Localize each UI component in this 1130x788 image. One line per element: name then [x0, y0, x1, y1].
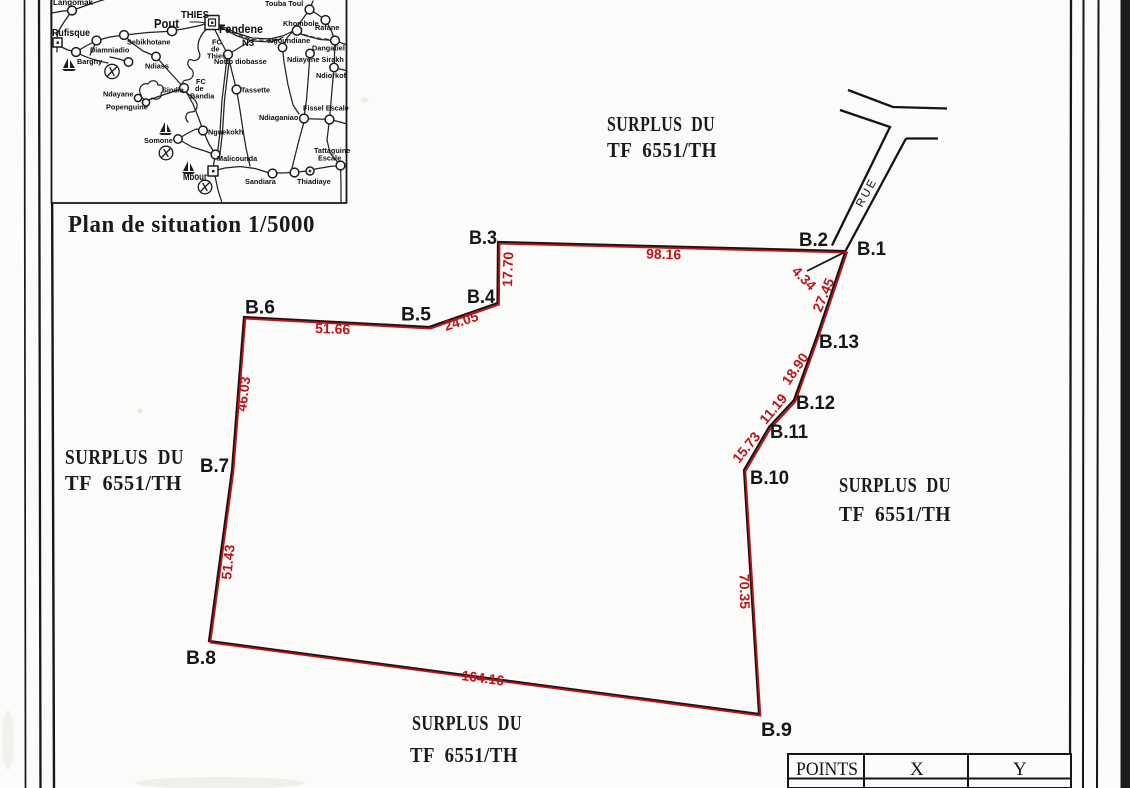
svg-text:B.3: B.3	[469, 228, 497, 249]
svg-text:Popenguine: Popenguine	[106, 103, 148, 112]
svg-text:B.9: B.9	[761, 720, 792, 741]
svg-text:Ndiass: Ndiass	[145, 62, 169, 71]
svg-text:Dangatiel: Dangatiel	[312, 44, 345, 53]
svg-text:Rafane: Rafane	[315, 23, 339, 32]
svg-text:B.12: B.12	[796, 393, 835, 414]
svg-text:Ndiorkof: Ndiorkof	[316, 71, 347, 80]
svg-text:17.70: 17.70	[499, 251, 516, 287]
svg-text:Malicounda: Malicounda	[217, 154, 258, 163]
svg-text:Diamniadio: Diamniadio	[90, 46, 130, 55]
svg-text:Sandiara: Sandiara	[245, 177, 277, 186]
svg-text:POINTS: POINTS	[796, 759, 858, 780]
svg-text:N3: N3	[242, 38, 254, 49]
svg-text:B.10: B.10	[750, 468, 789, 489]
svg-text:Langomak: Langomak	[53, 0, 94, 7]
svg-text:B.8: B.8	[186, 648, 216, 669]
svg-text:Sindia: Sindia	[162, 86, 185, 95]
svg-text:Ndiayene Sirakh: Ndiayene Sirakh	[287, 55, 344, 64]
svg-text:Tassette: Tassette	[241, 86, 270, 95]
svg-text:Escale: Escale	[318, 154, 341, 163]
svg-text:Fissel Escale: Fissel Escale	[303, 104, 349, 113]
svg-text:B.7: B.7	[200, 456, 229, 477]
svg-text:Ndayane: Ndayane	[103, 90, 133, 99]
svg-text:THIES: THIES	[181, 9, 209, 21]
svg-text:Touba Toul: Touba Toul	[265, 0, 303, 8]
svg-text:B.2: B.2	[799, 230, 828, 251]
svg-text:TF 6551/TH: TF 6551/TH	[410, 743, 518, 767]
svg-text:Bandia: Bandia	[190, 92, 215, 101]
svg-text:B.11: B.11	[770, 422, 808, 443]
svg-text:Rufisque: Rufisque	[52, 27, 90, 39]
svg-text:X: X	[910, 759, 924, 780]
svg-text:TF 6551/TH: TF 6551/TH	[839, 502, 951, 526]
svg-text:SURPLUS DU: SURPLUS DU	[412, 711, 522, 735]
svg-text:B.5: B.5	[401, 305, 431, 326]
svg-text:Thiadiaye: Thiadiaye	[297, 177, 331, 186]
svg-text:Nguekokh: Nguekokh	[208, 128, 243, 137]
svg-text:B.6: B.6	[245, 298, 275, 319]
svg-text:B.13: B.13	[819, 332, 859, 353]
svg-text:Fandene: Fandene	[219, 22, 263, 36]
svg-text:Khombole: Khombole	[283, 19, 319, 28]
svg-text:B.4: B.4	[467, 287, 495, 308]
svg-text:Somone: Somone	[144, 136, 173, 145]
svg-text:B.1: B.1	[857, 239, 886, 260]
svg-text:Plan de situation 1/5000: Plan de situation 1/5000	[68, 212, 315, 238]
svg-text:Sebikhotane: Sebikhotane	[127, 38, 170, 47]
svg-text:SURPLUS DU: SURPLUS DU	[839, 473, 951, 497]
svg-text:Mbour: Mbour	[183, 172, 207, 183]
svg-text:SURPLUS DU: SURPLUS DU	[607, 112, 715, 136]
svg-text:SURPLUS DU: SURPLUS DU	[65, 445, 184, 469]
svg-text:TF 6551/TH: TF 6551/TH	[607, 138, 717, 162]
svg-text:Bargny: Bargny	[77, 57, 103, 66]
svg-text:51.66: 51.66	[315, 320, 351, 337]
svg-text:Pout: Pout	[154, 16, 180, 31]
svg-text:Ndiaganiao: Ndiaganiao	[259, 113, 299, 122]
svg-text:TF 6551/TH: TF 6551/TH	[65, 471, 182, 495]
svg-text:98.16: 98.16	[646, 246, 682, 263]
svg-text:Ngoundiane: Ngoundiane	[268, 36, 310, 45]
svg-text:70.35: 70.35	[737, 574, 754, 610]
svg-text:Y: Y	[1013, 759, 1027, 780]
svg-text:Thies: Thies	[207, 52, 226, 61]
